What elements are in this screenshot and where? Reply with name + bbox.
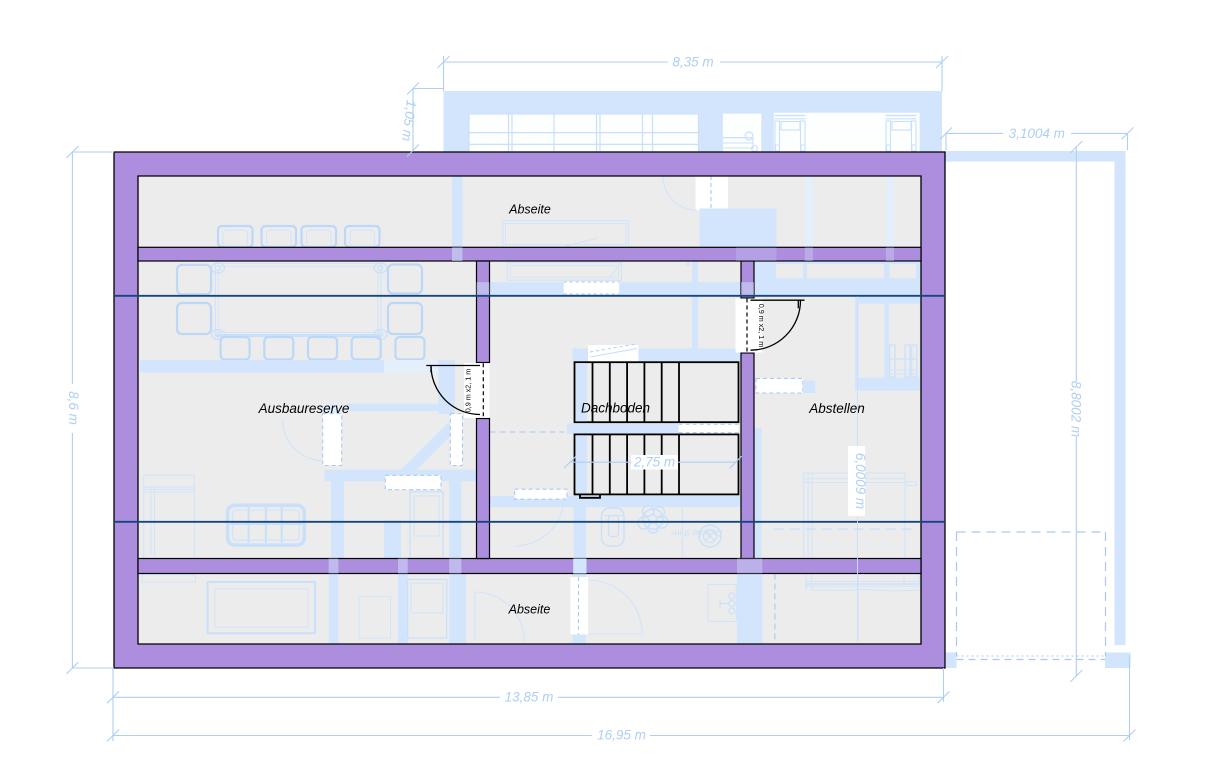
svg-text:8,35 m: 8,35 m: [672, 55, 713, 70]
svg-text:3,1004 m: 3,1004 m: [1009, 126, 1065, 141]
svg-text:Abseite: Abseite: [508, 603, 551, 617]
svg-text:16,95 m: 16,95 m: [597, 728, 646, 743]
svg-text:Abstellen: Abstellen: [808, 401, 865, 416]
svg-text:Dachboden: Dachboden: [581, 401, 650, 416]
svg-text:0,9 m x2, 1 m: 0,9 m x2, 1 m: [757, 304, 766, 348]
svg-text:2,75 m: 2,75 m: [633, 455, 675, 470]
svg-text:13,85 m: 13,85 m: [505, 690, 554, 705]
svg-text:Abseite: Abseite: [508, 203, 551, 217]
svg-text:Dusche 9 m²: Dusche 9 m²: [670, 528, 722, 538]
svg-text:8,6 m: 8,6 m: [66, 391, 81, 425]
svg-text:6,0009 m: 6,0009 m: [853, 453, 868, 509]
svg-text:8,8002 m: 8,8002 m: [1069, 381, 1084, 437]
svg-text:0,9 m x2, 1 m: 0,9 m x2, 1 m: [464, 369, 473, 413]
svg-text:Ausbaureserve: Ausbaureserve: [258, 401, 350, 416]
